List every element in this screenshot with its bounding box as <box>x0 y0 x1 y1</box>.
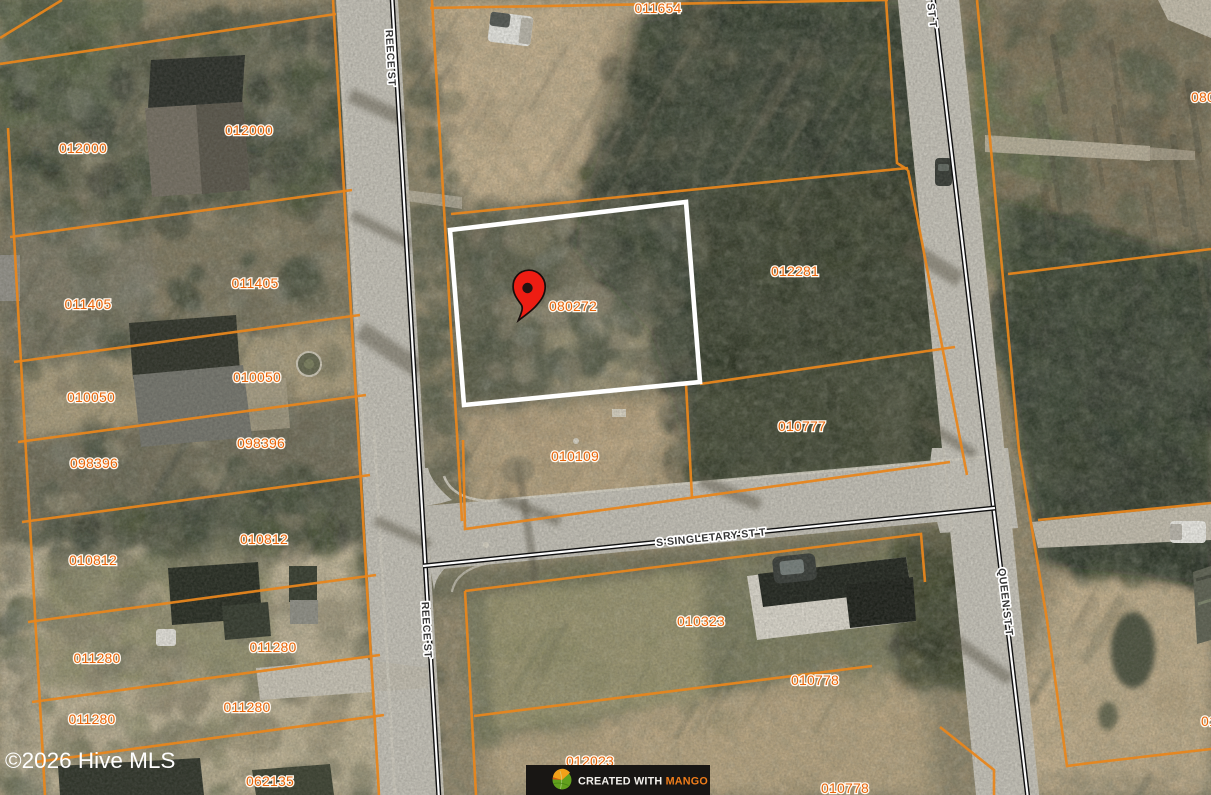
svg-text:©2026 Hive MLS: ©2026 Hive MLS <box>5 748 175 773</box>
svg-text:011654: 011654 <box>635 0 682 16</box>
svg-text:012000: 012000 <box>225 122 273 138</box>
svg-text:011280: 011280 <box>74 650 121 666</box>
svg-text:010050: 010050 <box>67 389 115 405</box>
svg-text:080272: 080272 <box>549 298 597 314</box>
svg-text:011280: 011280 <box>250 639 297 655</box>
svg-text:010: 010 <box>1201 713 1211 729</box>
svg-text:010323: 010323 <box>677 613 725 629</box>
svg-text:011280: 011280 <box>224 699 271 715</box>
svg-text:010812: 010812 <box>240 531 288 547</box>
svg-text:010778: 010778 <box>821 780 869 795</box>
svg-text:010778: 010778 <box>791 672 839 688</box>
svg-text:011405: 011405 <box>65 296 112 312</box>
svg-text:CREATED WITH MANGO: CREATED WITH MANGO <box>578 776 708 788</box>
svg-text:012000: 012000 <box>59 140 107 156</box>
svg-text:098396: 098396 <box>70 455 118 471</box>
svg-text:062135: 062135 <box>246 773 294 789</box>
svg-text:010777: 010777 <box>778 418 826 434</box>
svg-text:098396: 098396 <box>237 435 285 451</box>
svg-text:011405: 011405 <box>232 275 279 291</box>
svg-text:011280: 011280 <box>69 711 116 727</box>
svg-text:010050: 010050 <box>233 369 281 385</box>
svg-text:080272: 080272 <box>1191 89 1211 105</box>
svg-text:010812: 010812 <box>69 552 117 568</box>
svg-text:010109: 010109 <box>551 448 599 464</box>
svg-text:012281: 012281 <box>771 263 819 279</box>
